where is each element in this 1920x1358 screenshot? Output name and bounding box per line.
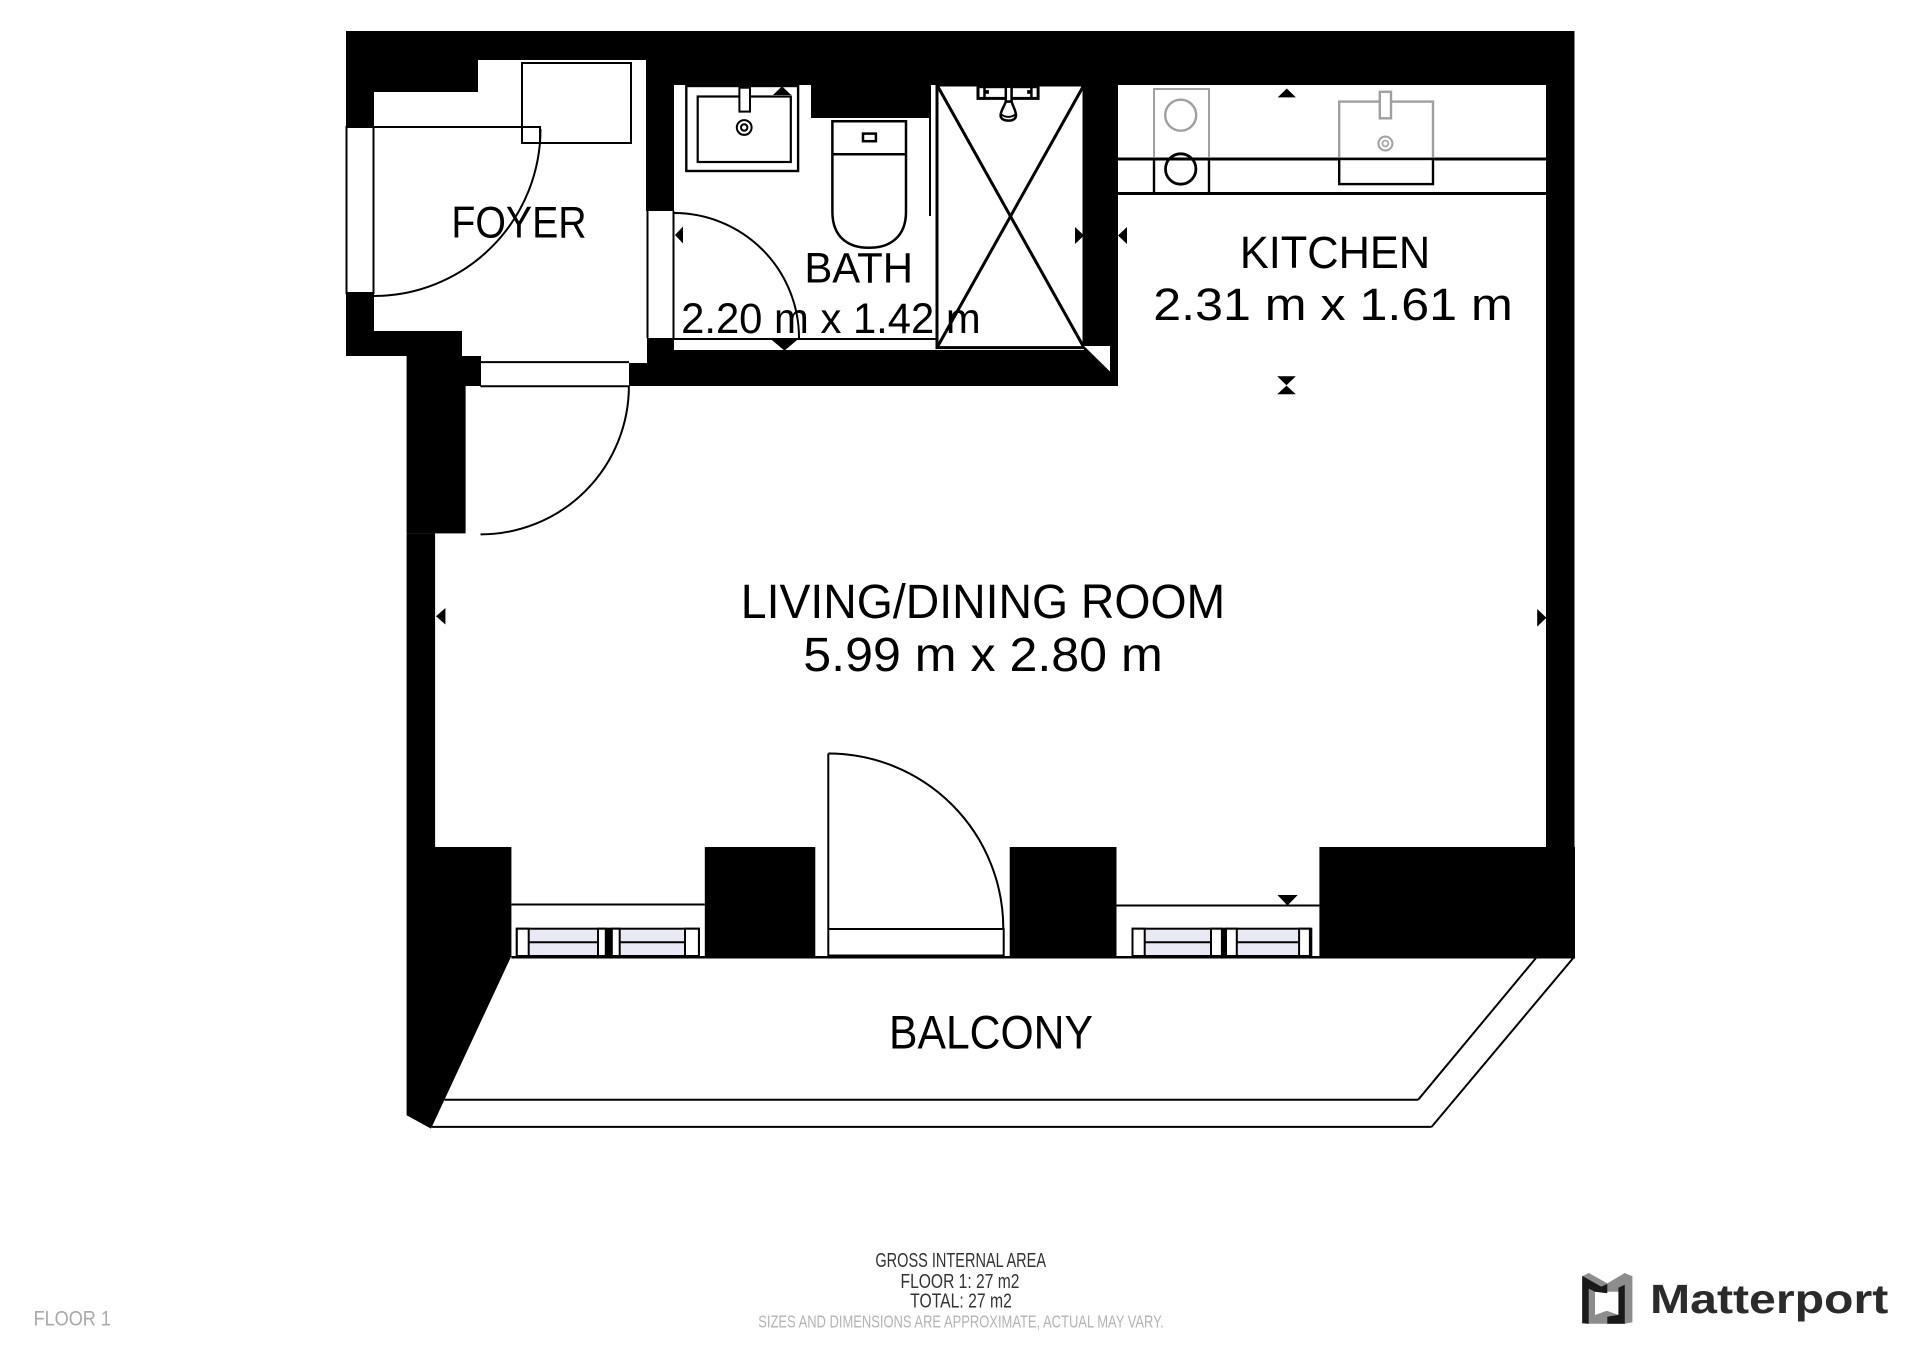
svg-text:2.20 m x 1.42 m: 2.20 m x 1.42 m — [681, 295, 981, 343]
svg-text:Matterport: Matterport — [1650, 1276, 1888, 1322]
svg-text:KITCHEN: KITCHEN — [1240, 227, 1430, 278]
svg-text:GROSS INTERNAL AREA: GROSS INTERNAL AREA — [875, 1250, 1046, 1272]
svg-text:FOYER: FOYER — [451, 198, 586, 248]
svg-text:FLOOR 1: FLOOR 1 — [34, 1307, 111, 1330]
svg-text:2.31 m x 1.61 m: 2.31 m x 1.61 m — [1153, 279, 1513, 330]
svg-text:BATH: BATH — [804, 245, 913, 293]
svg-text:LIVING/DINING ROOM: LIVING/DINING ROOM — [741, 575, 1225, 629]
svg-text:TOTAL: 27 m2: TOTAL: 27 m2 — [910, 1290, 1012, 1312]
svg-text:5.99 m x 2.80 m: 5.99 m x 2.80 m — [803, 628, 1163, 682]
svg-text:BALCONY: BALCONY — [889, 1007, 1093, 1060]
svg-text:SIZES AND DIMENSIONS ARE APPRO: SIZES AND DIMENSIONS ARE APPROXIMATE, AC… — [758, 1311, 1164, 1331]
